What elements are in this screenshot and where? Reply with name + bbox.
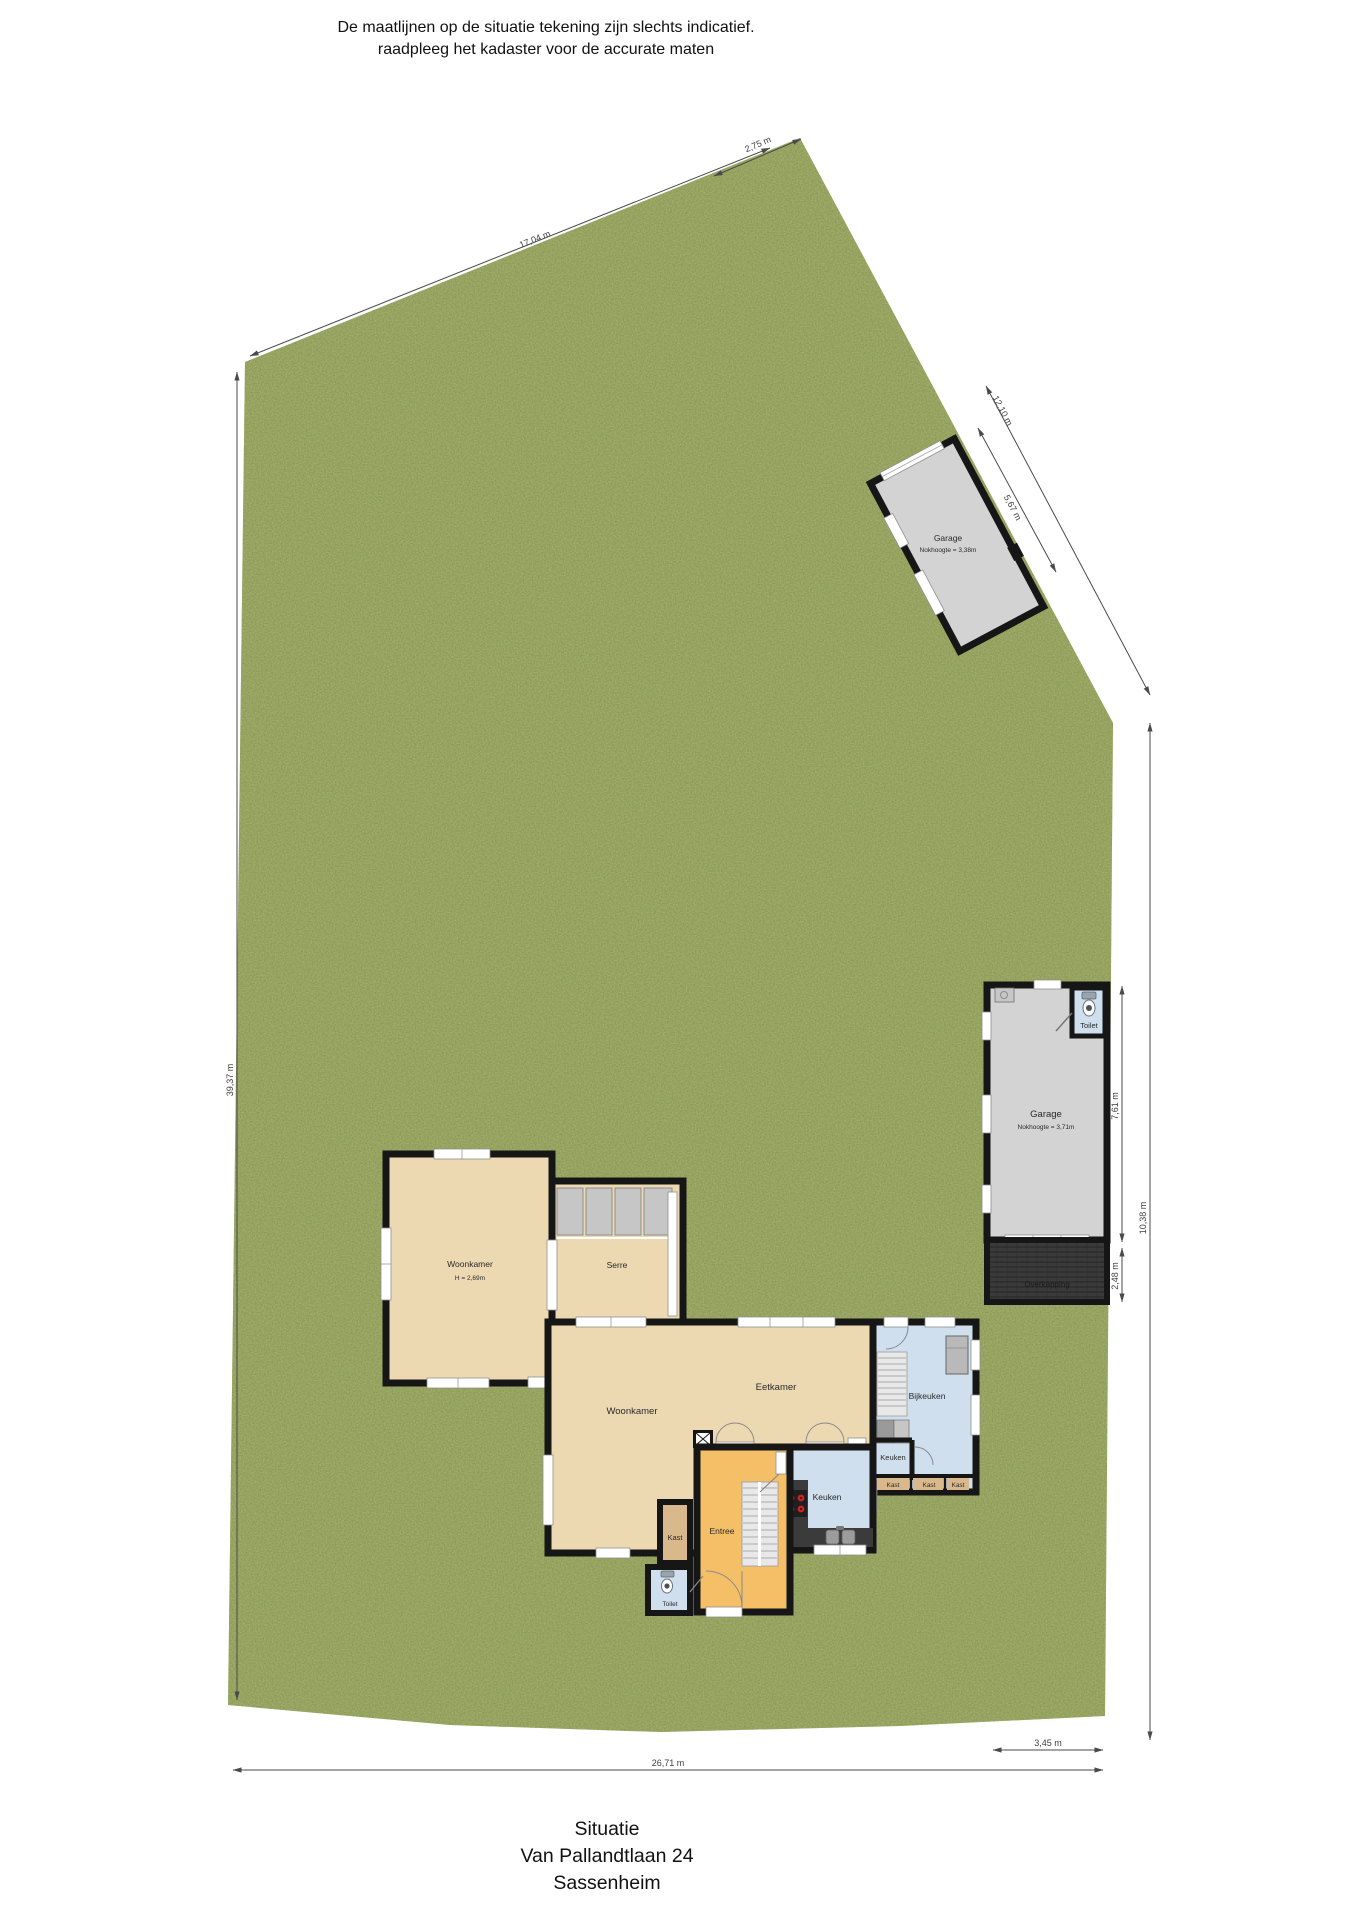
- detached-garage-detail: Nokhoogte = 3,38m: [920, 547, 977, 554]
- room-keuken: Keuken: [782, 1447, 873, 1555]
- kast-hal-label: Kast: [667, 1533, 683, 1542]
- dim-right: 10,38 m: [1138, 1202, 1148, 1235]
- detached-garage-name: Garage: [934, 533, 963, 543]
- boiler-icon: [995, 988, 1014, 1002]
- entree-label: Entree: [709, 1526, 734, 1536]
- header-disclaimer: De maatlijnen op de situatie tekening zi…: [337, 19, 754, 58]
- keuken-label: Keuken: [813, 1492, 842, 1502]
- footer-title-block: Situatie Van Pallandtlaan 24 Sassenheim: [520, 1818, 693, 1894]
- entree-stairs: [742, 1482, 778, 1566]
- woonkamer-label: Woonkamer: [606, 1406, 657, 1417]
- dim-left: 39,37 m: [225, 1064, 235, 1097]
- dim-bottom-right: 3,45 m: [1034, 1738, 1062, 1748]
- overkapping: Overkapping: [987, 1240, 1107, 1302]
- fridge-icon: [946, 1336, 968, 1374]
- toilet-icon: [1082, 992, 1096, 1016]
- plan-address: Van Pallandtlaan 24: [520, 1845, 693, 1867]
- woonkamer-upper-name: Woonkamer: [447, 1259, 493, 1269]
- bijkeuken-stairs: [877, 1352, 907, 1416]
- keuken-small-label: Keuken: [880, 1453, 905, 1462]
- garage-toilet-label: Toilet: [1080, 1021, 1098, 1030]
- plan-city: Sassenheim: [553, 1872, 660, 1894]
- kast-3-label: Kast: [951, 1482, 964, 1489]
- dim-garage2-side: 7,61 m: [1110, 1092, 1120, 1120]
- dim-overkapping: 2,48 m: [1110, 1262, 1120, 1290]
- room-entree: Entree: [697, 1447, 790, 1617]
- eetkamer-label: Eetkamer: [756, 1382, 797, 1393]
- woonkamer-upper-detail: H = 2,69m: [455, 1275, 485, 1282]
- attached-garage: Toilet Garage Nokhoogte = 3,71m: [982, 980, 1107, 1244]
- kast-1-label: Kast: [886, 1482, 899, 1489]
- room-kast-hal: Kast: [660, 1502, 690, 1563]
- toilet-hal-label: Toilet: [662, 1601, 677, 1608]
- dim-upper-right: 12,10 m: [991, 394, 1015, 427]
- room-bijkeuken-section: Kast Kast Kast Bijkeuken Keuken: [869, 1317, 980, 1510]
- room-woonkamer-upper: Woonkamer H = 2,69m: [381, 1149, 552, 1388]
- room-serre: Serre: [547, 1181, 683, 1327]
- kast-2-label: Kast: [922, 1482, 935, 1489]
- toilet-hal-icon: [661, 1571, 674, 1593]
- serre-label: Serre: [607, 1260, 628, 1270]
- attached-garage-detail: Nokhoogte = 3,71m: [1018, 1124, 1075, 1131]
- overkapping-label: Overkapping: [1024, 1280, 1069, 1289]
- plan-title: Situatie: [574, 1818, 639, 1840]
- serre-skylights: [557, 1188, 672, 1238]
- disclaimer-line2: raadpleeg het kadaster voor de accurate …: [378, 41, 714, 58]
- dim-bottom: 26,71 m: [652, 1758, 685, 1768]
- bijkeuken-label: Bijkeuken: [909, 1391, 946, 1401]
- situatie-plan: De maatlijnen op de situatie tekening zi…: [0, 0, 1358, 1920]
- dim-garage-side: 5,67 m: [1002, 493, 1024, 522]
- attached-garage-name: Garage: [1030, 1109, 1062, 1120]
- disclaimer-line1: De maatlijnen op de situatie tekening zi…: [337, 19, 754, 36]
- situatie-page: De maatlijnen op de situatie tekening zi…: [0, 0, 1358, 1920]
